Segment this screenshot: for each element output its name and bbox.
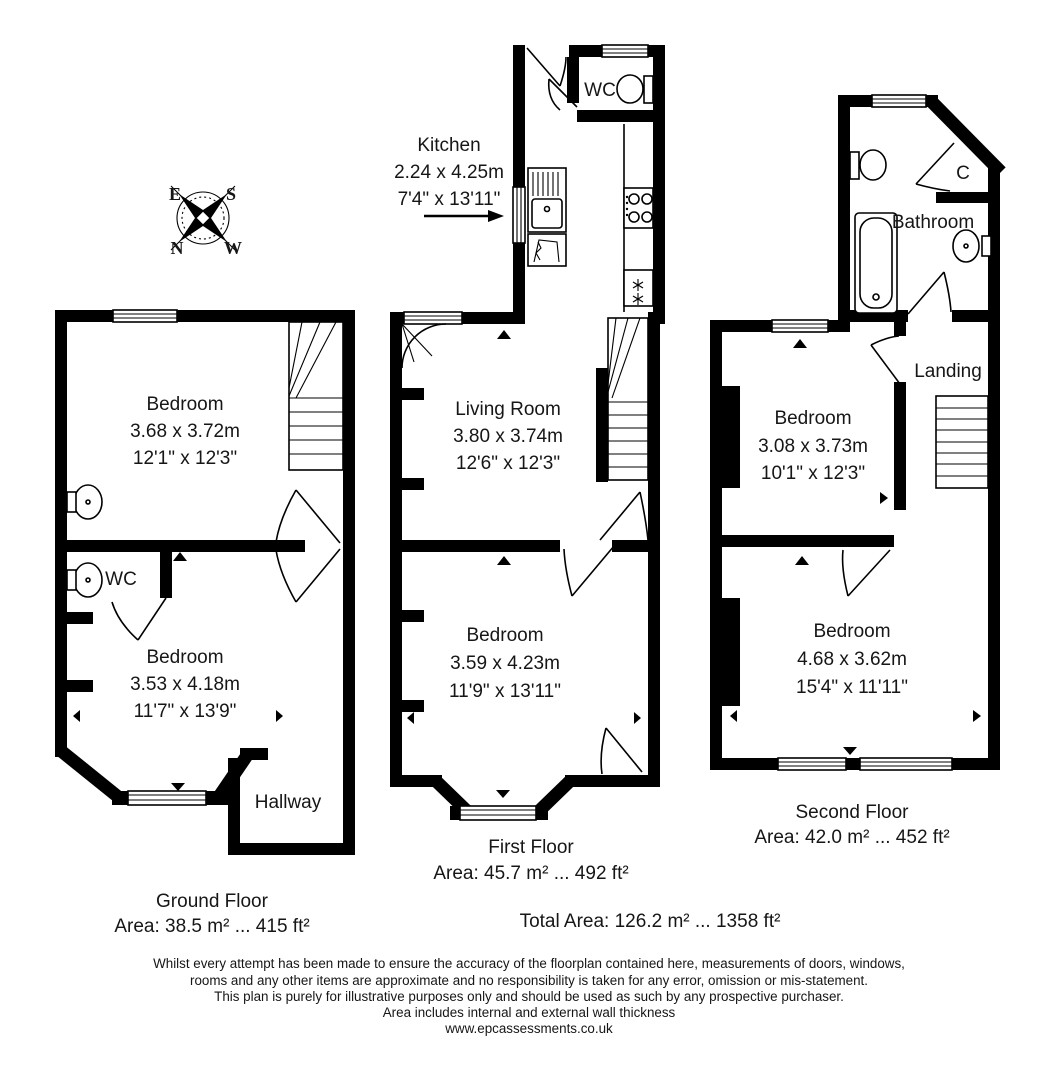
room-label-living-room: Living Room <box>455 399 561 420</box>
room-dim-imperial: 12'6" x 12'3" <box>456 453 560 474</box>
floorplan-page: E S N W <box>0 0 1058 1080</box>
room-label-bathroom: Bathroom <box>892 212 974 233</box>
room-dim-metric: 3.08 x 3.73m <box>758 436 868 457</box>
room-dim-imperial: 11'9" x 13'11" <box>449 681 561 702</box>
second-floor-plan: Bathroom C <box>710 95 1001 848</box>
toilet-icon <box>850 150 886 180</box>
disclaimer-line: Area includes internal and external wall… <box>383 1005 676 1020</box>
disclaimer-website: www.epcassessments.co.uk <box>444 1021 613 1036</box>
total-area-label: Total Area: 126.2 m² ... 1358 ft² <box>520 911 781 932</box>
floor-area-ground: Area: 38.5 m² ... 415 ft² <box>114 916 309 937</box>
room-dim-metric: 3.80 x 3.74m <box>453 426 563 447</box>
disclaimer: Whilst every attempt has been made to en… <box>153 956 905 1036</box>
stairs <box>289 322 343 470</box>
floor-area-first: Area: 45.7 m² ... 492 ft² <box>433 863 628 884</box>
compass-w: W <box>224 238 242 258</box>
floor-title-ground: Ground Floor <box>156 891 269 912</box>
room-dim-imperial: 11'7" x 13'9" <box>134 701 237 722</box>
room-label-wc: WC <box>105 569 137 590</box>
sink-icon <box>953 230 991 262</box>
room-label-bedroom2: Bedroom <box>813 621 890 642</box>
bathtub-icon <box>855 213 897 313</box>
room-dim-imperial: 15'4" x 11'11" <box>796 677 908 698</box>
bay-window <box>460 806 536 820</box>
room-dim-metric: 3.53 x 4.18m <box>130 674 240 695</box>
floor-title-second: Second Floor <box>795 802 909 823</box>
appliance-icon <box>528 234 566 266</box>
room-label-wc: WC <box>584 80 616 101</box>
ground-floor-plan: Bedroom 3.68 x 3.72m 12'1" x 12'3" WC Be… <box>55 310 355 937</box>
toilet-icon <box>617 75 653 103</box>
room-label-bedroom: Bedroom <box>466 625 543 646</box>
room-label-landing: Landing <box>914 361 982 382</box>
compass-n: N <box>171 238 184 258</box>
door-arc <box>112 490 340 640</box>
floor-title-first: First Floor <box>488 837 574 858</box>
room-dim-metric: 2.24 x 4.25m <box>394 162 504 183</box>
room-label-kitchen: Kitchen <box>417 135 480 156</box>
disclaimer-line: Whilst every attempt has been made to en… <box>153 956 905 971</box>
room-dim-imperial: 7'4" x 13'11" <box>398 189 501 210</box>
room-label-hallway: Hallway <box>255 792 322 813</box>
room-label-bedroom1: Bedroom <box>774 408 851 429</box>
window <box>872 95 926 107</box>
stairs <box>936 396 988 488</box>
window <box>404 312 462 324</box>
room-dim-metric: 4.68 x 3.62m <box>797 649 907 670</box>
room-dim-metric: 3.59 x 4.23m <box>450 653 560 674</box>
compass-e: E <box>169 184 181 204</box>
compass-s: S <box>226 184 236 204</box>
fridge-freezer-icon <box>624 270 653 306</box>
first-floor-plan: WC K <box>390 45 665 884</box>
kitchen-sink-icon <box>528 168 566 232</box>
disclaimer-line: This plan is purely for illustrative pur… <box>214 989 844 1004</box>
window <box>113 310 177 322</box>
door-arc <box>564 492 648 774</box>
kitchen-pointer-arrow-icon <box>424 210 504 222</box>
room-dim-imperial: 12'1" x 12'3" <box>133 448 237 469</box>
room-label-cupboard: C <box>956 163 970 184</box>
floor-area-second: Area: 42.0 m² ... 452 ft² <box>754 827 949 848</box>
stove-icon <box>624 188 653 228</box>
door-arc <box>402 324 446 368</box>
bay-window <box>128 791 206 805</box>
compass-rose-icon: E S N W <box>169 184 242 258</box>
room-dim-metric: 3.68 x 3.72m <box>130 421 240 442</box>
disclaimer-line: rooms and any other items are approximat… <box>190 973 868 988</box>
floorplan-drawing: E S N W <box>0 0 1058 1080</box>
room-dim-imperial: 10'1" x 12'3" <box>761 463 865 484</box>
room-label-bedroom1: Bedroom <box>146 394 223 415</box>
stairs <box>608 318 648 480</box>
room-label-bedroom2: Bedroom <box>146 647 223 668</box>
